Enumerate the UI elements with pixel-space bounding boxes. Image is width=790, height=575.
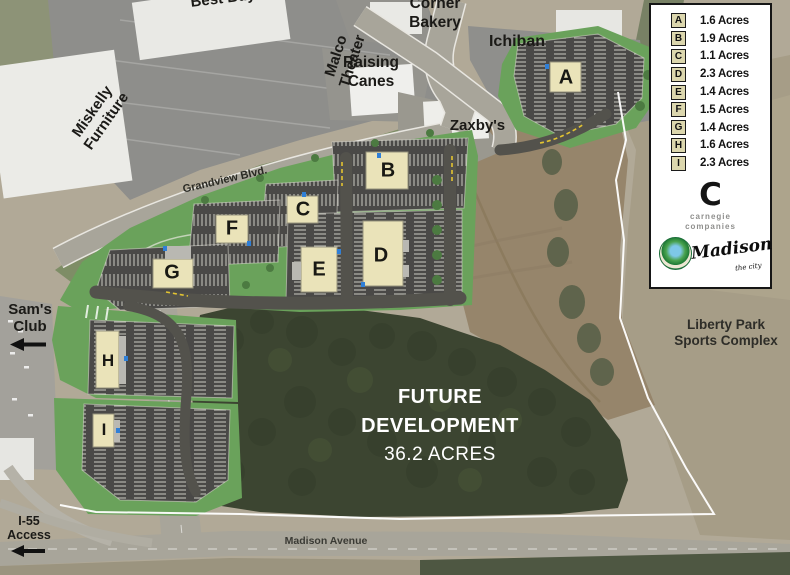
building-e-letter: E xyxy=(312,259,325,282)
legend-row: D 2.3 Acres xyxy=(651,65,770,83)
zaxbys-label: Zaxby's xyxy=(435,118,520,135)
building-d-letter: D xyxy=(374,245,388,268)
i55-access-label: I-55 Access xyxy=(0,514,58,543)
legend-row: E 1.4 Acres xyxy=(651,83,770,101)
legend-area-f: 1.5 Acres xyxy=(700,104,749,116)
legend-area-g: 1.4 Acres xyxy=(700,122,749,134)
legend-row: F 1.5 Acres xyxy=(651,101,770,119)
legend-chip-c: C xyxy=(671,49,686,64)
legend-row: H 1.6 Acres xyxy=(651,137,770,155)
legend-row: G 1.4 Acres xyxy=(651,119,770,137)
ichiban-label: Ichiban xyxy=(472,33,562,51)
legend-area-h: 1.6 Acres xyxy=(700,139,749,151)
madison-city-logo: Madison the city xyxy=(659,233,767,281)
madison-script: Madison xyxy=(690,234,773,264)
building-c-letter: C xyxy=(296,199,310,222)
legend-row: B 1.9 Acres xyxy=(651,30,770,48)
building-h-letter: H xyxy=(102,351,114,371)
legend-chip-i: I xyxy=(671,156,686,171)
carnegie-companies-logo: C C carnegie companies xyxy=(651,180,770,232)
sams-club-label: Sam's Club xyxy=(2,301,58,336)
legend-area-e: 1.4 Acres xyxy=(700,86,749,98)
future-development-label: FUTURE DEVELOPMENT 36.2 ACRES xyxy=(335,383,545,469)
building-g-letter: G xyxy=(164,262,180,285)
building-b-letter: B xyxy=(381,160,395,183)
liberty-park-label: Liberty Park Sports Complex xyxy=(652,317,790,349)
legend-chip-d: D xyxy=(671,67,686,82)
legend-row: A 1.6 Acres xyxy=(651,12,770,30)
legend-chip-f: F xyxy=(671,102,686,117)
building-i-letter: I xyxy=(102,420,107,440)
madison-avenue-label: Madison Avenue xyxy=(280,536,372,548)
madison-city-seal-icon xyxy=(659,237,692,270)
legend-chip-e: E xyxy=(671,85,686,100)
corner-bakery-label: Corner Bakery xyxy=(385,0,485,33)
raising-canes-label: Raising Canes xyxy=(328,53,414,92)
legend-chip-h: H xyxy=(671,138,686,153)
legend-area-i: 2.3 Acres xyxy=(700,157,749,169)
legend-area-d: 2.3 Acres xyxy=(700,68,749,80)
legend-panel: A 1.6 Acres B 1.9 Acres C 1.1 Acres D 2.… xyxy=(649,3,772,289)
madison-script-sub: the city xyxy=(735,261,762,272)
legend-chip-b: B xyxy=(671,31,686,46)
legend-area-a: 1.6 Acres xyxy=(700,15,749,27)
carnegie-monogram-icon: C C xyxy=(699,180,722,212)
legend-area-b: 1.9 Acres xyxy=(700,33,749,45)
legend-chip-g: G xyxy=(671,120,686,135)
legend-chip-a: A xyxy=(671,13,686,28)
building-f-letter: F xyxy=(226,218,238,241)
site-plan-map: Best Buy Malco Theater Miskelly Furnitur… xyxy=(0,0,790,575)
building-a-letter: A xyxy=(559,67,573,90)
legend-row: I 2.3 Acres xyxy=(651,154,770,172)
legend-area-c: 1.1 Acres xyxy=(700,50,749,62)
legend-row: C 1.1 Acres xyxy=(651,48,770,66)
